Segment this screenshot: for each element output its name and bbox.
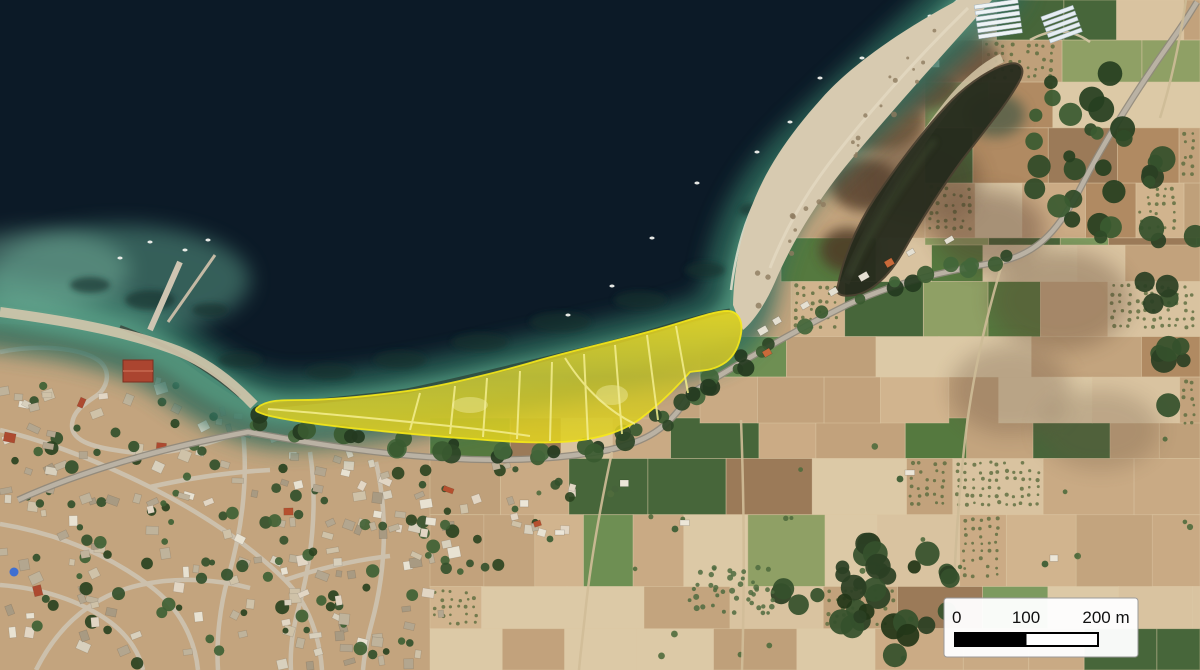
orchard-dot — [918, 494, 922, 498]
boat-dot — [205, 239, 210, 242]
boat-dot — [565, 314, 570, 317]
town-building — [335, 631, 345, 641]
orchard-dot — [1028, 469, 1031, 472]
town-tree — [263, 572, 273, 582]
beach-scrub-dot — [755, 270, 760, 275]
orchard-dot — [928, 227, 931, 230]
town-building — [160, 547, 171, 559]
forest-tree — [1095, 159, 1112, 176]
orchard-dot — [996, 573, 999, 576]
field-cell — [905, 418, 966, 459]
orchard-dot — [917, 461, 921, 465]
field-tree — [766, 643, 772, 649]
orchard-dot — [1156, 193, 1160, 197]
orchard-dot — [994, 541, 997, 544]
orchard-dot — [965, 503, 969, 507]
orchard-dot — [1190, 317, 1194, 321]
orchard-dot — [1128, 310, 1132, 314]
farm-building — [555, 530, 564, 535]
orchard-dot — [1126, 324, 1129, 327]
orchard-dot — [715, 593, 719, 597]
forest-tree — [1028, 155, 1051, 178]
forest-tree — [1098, 61, 1123, 86]
orchard-dot — [1027, 493, 1031, 497]
boat-dot — [649, 237, 654, 240]
field-cell — [797, 629, 875, 670]
orchard-dot — [1184, 301, 1188, 305]
suburb-tree — [275, 557, 283, 565]
orchard-dot — [1159, 316, 1162, 319]
orchard-dot — [1174, 324, 1177, 327]
boat-dot — [182, 249, 187, 252]
orchard-dot — [973, 502, 976, 505]
forest-tree — [1177, 353, 1191, 367]
orchard-dot — [1001, 52, 1004, 55]
farm-tree — [897, 476, 904, 483]
orchard-dot — [1173, 219, 1177, 223]
orchard-dot — [1192, 132, 1195, 135]
orchard-dot — [1010, 53, 1014, 57]
orchard-dot — [941, 485, 945, 489]
orchard-dot — [700, 604, 705, 609]
town-tree — [296, 610, 309, 623]
beach-scrub-dot — [921, 61, 925, 65]
town-building — [414, 650, 421, 659]
orchard-dot — [1192, 310, 1195, 313]
orchard-dot — [1151, 325, 1155, 329]
orchard-dot — [433, 613, 436, 616]
town-building — [378, 656, 385, 666]
town-tree — [197, 446, 206, 455]
orchard-dot — [449, 605, 452, 608]
orchard-dot — [971, 542, 974, 545]
orchard-dot — [1012, 495, 1015, 498]
suburb-building — [441, 539, 452, 548]
orchard-dot — [1173, 211, 1176, 214]
orchard-dot — [1027, 44, 1031, 48]
suburb-building — [333, 558, 342, 566]
seagrass — [685, 262, 725, 278]
suburb-tree — [512, 466, 518, 472]
orchard-dot — [1037, 471, 1040, 474]
orchard-dot — [980, 519, 983, 522]
orchard-dot — [751, 580, 755, 584]
orchard-dot — [741, 577, 745, 581]
beach-scrub-dot — [891, 112, 897, 118]
forest-tree — [1139, 216, 1164, 241]
town-building — [4, 495, 11, 504]
orchard-dot — [1182, 132, 1186, 136]
beach-scrub-dot — [821, 202, 826, 207]
orchard-dot — [825, 622, 829, 626]
orchard-dot — [771, 590, 775, 594]
town-tree — [196, 573, 207, 584]
orchard-dot — [464, 605, 468, 609]
orchard-dot — [827, 599, 831, 603]
suburb-building — [382, 490, 392, 500]
orchard-dot — [1035, 502, 1038, 505]
orchard-dot — [964, 462, 967, 465]
town-tree — [290, 490, 302, 502]
boat-dot — [787, 121, 792, 124]
orchard-dot — [713, 588, 717, 592]
beach-scrub-dot — [791, 214, 796, 219]
orchard-dot — [694, 605, 700, 611]
town-tree — [141, 558, 153, 570]
orchard-dot — [1181, 162, 1185, 166]
beach-scrub-dot — [788, 240, 791, 243]
orchard-dot — [1037, 493, 1040, 496]
orchard-dot — [971, 527, 975, 531]
orchard-dot — [771, 598, 775, 602]
orchard-dot — [981, 503, 984, 506]
forest-tree — [1143, 293, 1164, 314]
forest-tree — [829, 609, 854, 634]
roadside-tree — [585, 444, 604, 463]
field-tree — [766, 567, 771, 572]
farm-tree — [672, 526, 679, 533]
orchard-dot — [964, 528, 967, 531]
town-building — [14, 394, 23, 401]
town-building — [340, 644, 353, 652]
beach-scrub-dot — [912, 68, 915, 71]
orchard-dot — [876, 623, 879, 626]
forest-tree — [773, 578, 794, 599]
suburb-building — [420, 528, 428, 537]
boat-dot — [817, 77, 822, 80]
orchard-dot — [1011, 43, 1015, 47]
beach-scrub-dot — [880, 104, 883, 107]
town-building — [3, 432, 16, 443]
orchard-dot — [748, 590, 753, 595]
beach-scrub-dot — [756, 303, 762, 309]
orchard-dot — [825, 300, 829, 304]
orchard-dot — [1021, 495, 1024, 498]
roadside-tree — [797, 319, 813, 335]
orchard-dot — [818, 299, 822, 303]
orchard-dot — [925, 486, 929, 490]
roadside-tree — [855, 294, 866, 305]
town-building — [69, 516, 78, 526]
orchard-dot — [1164, 188, 1167, 191]
forest-tree — [1116, 130, 1133, 147]
orchard-dot — [963, 567, 966, 570]
town-building — [276, 658, 288, 670]
orchard-dot — [910, 485, 914, 489]
orchard-dot — [1190, 397, 1194, 401]
orchard-dot — [988, 479, 991, 482]
orchard-dot — [972, 487, 975, 490]
orchard-dot — [802, 294, 805, 297]
roadside-tree — [352, 430, 365, 443]
town-tree — [81, 535, 92, 546]
orchard-dot — [833, 325, 837, 329]
field-tree — [1187, 524, 1193, 530]
suburb-tree — [473, 535, 482, 544]
town-building — [146, 526, 159, 535]
suburb-building — [510, 513, 519, 521]
orchard-dot — [989, 471, 993, 475]
town-tree — [73, 425, 80, 432]
orchard-dot — [475, 614, 478, 617]
orchard-dot — [917, 502, 921, 506]
scrub-patch — [1040, 390, 1160, 470]
town-building — [251, 490, 258, 498]
orchard-dot — [1143, 317, 1146, 320]
farm-tree — [512, 506, 519, 513]
town-building — [306, 661, 314, 670]
orchard-dot — [794, 283, 798, 287]
town-building — [0, 548, 8, 556]
seagrass — [306, 364, 354, 380]
orchard-dot — [964, 533, 968, 537]
field-cell — [907, 459, 953, 515]
orchard-dot — [794, 308, 798, 312]
orchard-dot — [988, 525, 991, 528]
town-tree — [42, 595, 50, 603]
orchard-dot — [734, 596, 739, 601]
town-tree — [283, 628, 289, 634]
town-building — [46, 430, 56, 437]
orchard-dot — [1168, 324, 1171, 327]
beach-scrub-dot — [793, 228, 797, 232]
orchard-dot — [695, 583, 699, 587]
town-tree — [214, 645, 224, 655]
orchard-dot — [1170, 187, 1174, 191]
suburb-building — [395, 511, 406, 518]
orchard-dot — [925, 492, 929, 496]
town-tree — [128, 441, 139, 452]
town-tree — [406, 639, 414, 647]
orchard-dot — [1005, 503, 1008, 506]
orchard-dot — [1034, 68, 1037, 71]
forest-tree — [883, 643, 907, 667]
town-tree — [241, 609, 248, 616]
orchard-dot — [1041, 45, 1044, 48]
town-tree — [221, 569, 233, 581]
orchard-dot — [1149, 210, 1152, 213]
town-building — [335, 595, 343, 606]
seagrass — [452, 333, 508, 351]
town-tree — [67, 500, 75, 508]
town-tree — [161, 538, 168, 545]
orchard-dot — [450, 598, 453, 601]
orchard-dot — [1191, 324, 1194, 327]
town-tree — [354, 642, 368, 656]
forest-tree — [836, 561, 850, 575]
orchard-dot — [1019, 501, 1023, 505]
farm-building — [905, 470, 915, 475]
roadside-tree — [662, 420, 674, 432]
beach-scrub-dot — [789, 251, 794, 256]
orchard-dot — [711, 604, 715, 608]
forest-tree — [1091, 127, 1104, 140]
orchard-dot — [964, 542, 967, 545]
forest-tree — [1102, 180, 1125, 203]
orchard-dot — [1175, 318, 1179, 322]
town-building — [69, 559, 75, 566]
forest-tree — [1156, 393, 1180, 417]
town-tree — [209, 459, 220, 470]
field-tree — [798, 467, 803, 472]
orchard-dot — [986, 565, 990, 569]
orchard-dot — [919, 470, 922, 473]
orchard-dot — [755, 565, 760, 570]
roadside-tree — [737, 359, 754, 376]
orchard-dot — [979, 494, 982, 497]
seagrass — [374, 351, 426, 369]
scale-bar-filled-half — [955, 633, 1027, 646]
field-cell — [1134, 459, 1200, 515]
town-tree — [366, 564, 379, 577]
town-tree — [32, 621, 43, 632]
map-image: 0 100 200 m — [0, 0, 1200, 670]
field-tree — [671, 631, 678, 638]
orchard-dot — [940, 495, 943, 498]
orchard-dot — [995, 494, 999, 498]
field-cell — [816, 418, 905, 459]
town-building — [447, 546, 461, 559]
boat-dot — [609, 285, 614, 288]
orchard-dot — [761, 611, 766, 616]
town-building — [290, 453, 299, 461]
orchard-dot — [995, 567, 998, 570]
orchard-dot — [472, 596, 476, 600]
scale-label-0: 0 — [952, 608, 961, 627]
town-building — [309, 632, 322, 639]
orchard-dot — [1012, 471, 1015, 474]
beach-scrub-dot — [851, 140, 855, 144]
forest-tree — [810, 588, 824, 602]
town-building — [193, 565, 199, 573]
farm-building — [620, 480, 629, 487]
orchard-dot — [712, 565, 717, 570]
orchard-dot — [457, 605, 460, 608]
town-tree — [48, 600, 59, 611]
seagrass — [70, 277, 110, 293]
farm-building — [520, 500, 528, 507]
beach-scrub-dot — [804, 206, 809, 211]
town-building — [419, 498, 432, 509]
orchard-dot — [465, 613, 468, 616]
orchard-dot — [1050, 52, 1053, 55]
orchard-dot — [1021, 461, 1025, 465]
town-building — [336, 570, 342, 577]
orchard-dot — [1182, 395, 1186, 399]
orchard-dot — [465, 621, 468, 624]
orchard-dot — [996, 526, 1000, 530]
town-tree — [103, 626, 112, 635]
orchard-dot — [796, 292, 799, 295]
orchard-dot — [819, 286, 823, 290]
orchard-dot — [1013, 503, 1016, 506]
suburb-building — [284, 508, 293, 515]
town-tree — [76, 573, 82, 579]
orchard-dot — [981, 543, 984, 546]
orchard-dot — [987, 517, 991, 521]
orchard-dot — [1184, 380, 1188, 384]
field-cell — [759, 418, 816, 459]
town-building — [79, 452, 87, 459]
forest-tree — [1044, 90, 1060, 106]
field-tree — [633, 567, 638, 572]
orchard-dot — [449, 614, 452, 617]
orchard-dot — [727, 575, 733, 581]
orchard-dot — [979, 462, 982, 465]
orchard-dot — [433, 607, 437, 611]
town-tree — [80, 582, 93, 595]
boat-dot — [117, 257, 122, 260]
orchard-dot — [1020, 487, 1024, 491]
scrub-patch — [990, 250, 1130, 350]
orchard-dot — [970, 494, 974, 498]
forest-tree — [897, 624, 920, 647]
orchard-dot — [917, 487, 920, 490]
orchard-dot — [827, 590, 831, 594]
orchard-dot — [729, 588, 735, 594]
orchard-dot — [981, 477, 985, 481]
roadside-tree — [943, 257, 958, 272]
orchard-dot — [911, 461, 915, 465]
orchard-dot — [942, 479, 945, 482]
town-tree — [111, 428, 121, 438]
scale-label-200m: 200 m — [1082, 608, 1129, 627]
beach-scrub-dot — [857, 144, 860, 147]
suburb-building — [425, 517, 436, 526]
orchard-dot — [802, 286, 806, 290]
orchard-dot — [971, 517, 975, 521]
beach-scrub-dot — [765, 274, 770, 279]
orchard-dot — [456, 622, 460, 626]
orchard-dot — [1172, 201, 1176, 205]
roadside-tree — [432, 441, 452, 461]
orchard-dot — [988, 486, 992, 490]
town-building — [404, 659, 414, 669]
orchard-dot — [746, 597, 750, 601]
town-building — [402, 606, 411, 612]
field-cell — [671, 418, 759, 459]
forest-tree — [788, 594, 809, 615]
map-canvas: 0 100 200 m — [0, 0, 1200, 670]
field-cell — [1006, 515, 1076, 587]
orchard-dot — [1035, 51, 1039, 55]
boat-dot — [694, 182, 699, 185]
field-cell — [786, 337, 876, 377]
orchard-dot — [756, 605, 761, 610]
town-tree — [362, 584, 370, 592]
field-tree — [1183, 520, 1188, 525]
orchard-dot — [1193, 413, 1196, 416]
field-cell — [876, 337, 939, 377]
orchard-dot — [910, 502, 914, 506]
orchard-dot — [1184, 309, 1188, 313]
orchard-dot — [1189, 155, 1193, 159]
field-cell — [502, 629, 564, 670]
orchard-dot — [1005, 493, 1009, 497]
town-building — [338, 613, 349, 625]
roadside-tree — [988, 257, 1003, 272]
town-tree — [131, 657, 143, 669]
town-building — [173, 582, 184, 593]
orchard-dot — [1042, 58, 1046, 62]
orchard-dot — [1136, 309, 1140, 313]
orchard-dot — [826, 612, 830, 616]
orchard-dot — [1050, 59, 1054, 63]
field-cell — [1157, 629, 1200, 670]
scale-label-100: 100 — [1012, 608, 1040, 627]
suburb-building — [280, 567, 288, 575]
orchard-dot — [1182, 389, 1185, 392]
